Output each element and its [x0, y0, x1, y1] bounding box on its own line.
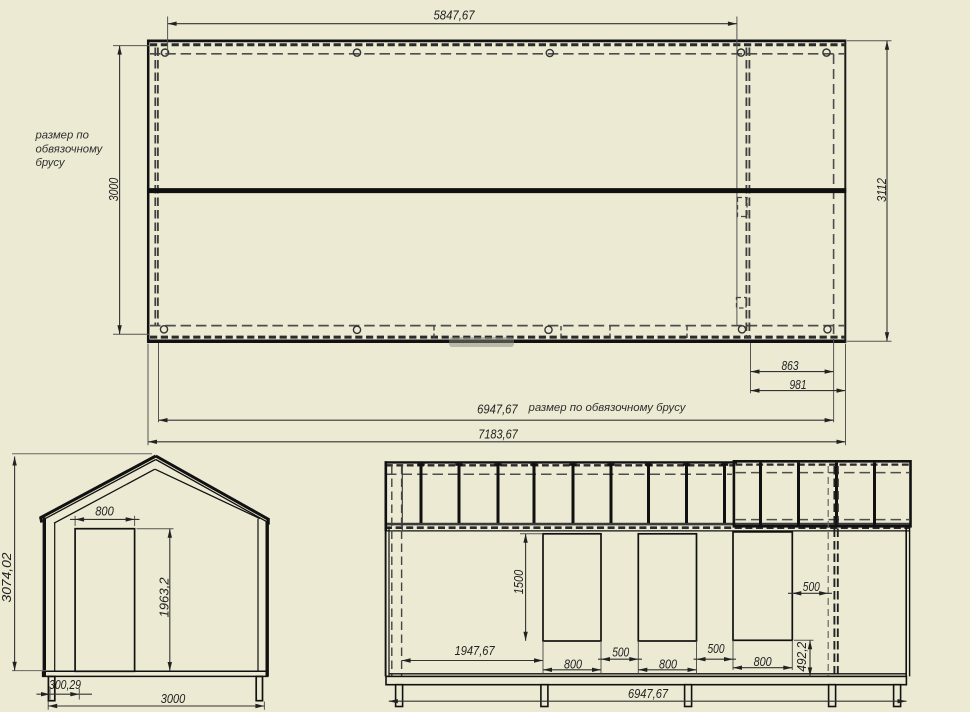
- svg-text:863: 863: [782, 359, 799, 373]
- svg-text:3112: 3112: [875, 178, 889, 202]
- svg-text:3000: 3000: [107, 178, 121, 202]
- svg-text:492,2: 492,2: [795, 642, 809, 672]
- svg-text:3074,02: 3074,02: [0, 552, 14, 602]
- svg-text:брусу: брусу: [36, 157, 66, 169]
- svg-text:500: 500: [612, 646, 629, 660]
- svg-text:1500: 1500: [512, 570, 526, 595]
- svg-text:5847,67: 5847,67: [434, 9, 476, 23]
- svg-text:размер по: размер по: [35, 130, 89, 142]
- svg-text:800: 800: [754, 655, 772, 669]
- svg-text:обвязочному: обвязочному: [36, 143, 104, 155]
- svg-text:1963,2: 1963,2: [158, 577, 172, 617]
- svg-text:размер по обвязочному брусу: размер по обвязочному брусу: [527, 402, 686, 414]
- svg-text:300,29: 300,29: [49, 678, 81, 692]
- svg-text:800: 800: [564, 658, 582, 672]
- svg-text:500: 500: [708, 642, 725, 656]
- svg-text:981: 981: [790, 378, 807, 392]
- svg-text:6947,67: 6947,67: [628, 687, 669, 701]
- svg-text:800: 800: [659, 658, 677, 672]
- svg-text:1947,67: 1947,67: [455, 644, 496, 658]
- svg-text:800: 800: [95, 505, 114, 519]
- svg-text:3000: 3000: [161, 692, 186, 706]
- svg-text:6947,67: 6947,67: [477, 403, 518, 417]
- svg-text:7183,67: 7183,67: [478, 428, 518, 442]
- svg-text:500: 500: [803, 580, 820, 594]
